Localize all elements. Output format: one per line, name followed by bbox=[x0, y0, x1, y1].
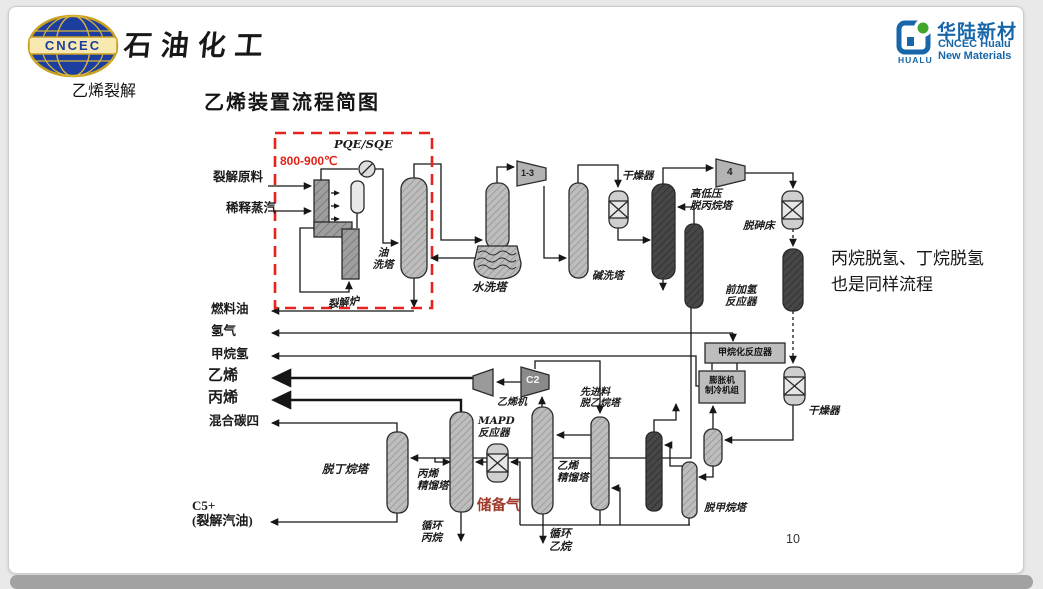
hualu-subtitle-en1: CNCEC Hualu bbox=[938, 38, 1011, 50]
mapd-reactor bbox=[487, 444, 508, 482]
label-recycle-propane: 循环 丙烷 bbox=[421, 521, 442, 545]
front-hydrogenation-reactor bbox=[783, 249, 803, 311]
label-feed-cracking: 裂解原料 bbox=[213, 170, 263, 184]
label-depropanizer: 高低压 脱丙烷塔 bbox=[690, 189, 732, 213]
brand-title: 石油化工 bbox=[122, 24, 274, 64]
page-title: 乙烯装置流程简图 bbox=[204, 86, 380, 115]
hualu-subtitle-en2: New Materials bbox=[938, 50, 1011, 62]
label-front-hydrogenation: 前加氢 反应器 bbox=[725, 285, 757, 309]
deethanizer-column bbox=[591, 417, 609, 510]
label-recycle-ethane: 循环 乙烷 bbox=[549, 528, 571, 553]
label-ethylene-compressor: 乙烯机 bbox=[497, 397, 527, 408]
cold-separator-vessel bbox=[704, 429, 722, 466]
label-hydrogen: 氢气 bbox=[211, 324, 236, 338]
depropanizer-column-2 bbox=[685, 224, 703, 308]
label-oil-wash-tower: 油 洗塔 bbox=[366, 248, 400, 272]
label-debutanizer: 脱丁烷塔 bbox=[322, 463, 368, 476]
compressor-1-3-text: 1-3 bbox=[521, 168, 534, 178]
page-number: 10 bbox=[786, 532, 800, 546]
demethanizer-column bbox=[682, 462, 697, 518]
label-methanation-reactor: 甲烷化反应器 bbox=[706, 347, 784, 357]
cold-column bbox=[646, 432, 662, 511]
label-arsenic-bed: 脱砷床 bbox=[743, 221, 775, 233]
oil-wash-tower bbox=[401, 178, 427, 278]
label-demethanizer: 脱甲烷塔 bbox=[704, 503, 746, 515]
label-methane-hydrogen: 甲烷氢 bbox=[211, 347, 249, 361]
quench-drum bbox=[351, 181, 364, 213]
label-temperature: 800-900℃ bbox=[280, 155, 338, 169]
compressor-c2-text: C2 bbox=[526, 375, 539, 387]
label-ethylene: 乙烯 bbox=[208, 368, 238, 385]
section-label: 乙烯裂解 bbox=[72, 77, 136, 101]
ethylene-expander bbox=[473, 369, 493, 396]
label-caustic-wash-tower: 碱洗塔 bbox=[592, 271, 624, 283]
label-pqe-sqe: PQE/SQE bbox=[334, 138, 393, 151]
label-dryer-right: 干燥器 bbox=[808, 406, 840, 418]
label-c5-gasoline: C5+ (裂解汽油) bbox=[192, 499, 253, 529]
hualu-glyph-text: HUALU bbox=[898, 55, 933, 65]
cncec-badge-text: CNCEC bbox=[45, 38, 101, 53]
label-ethylene-column: 乙烯 精馏塔 bbox=[557, 461, 589, 485]
side-note: 丙烷脱氢、丁烷脱氢 也是同样流程 bbox=[831, 246, 1036, 299]
caustic-wash-tower bbox=[569, 183, 588, 278]
label-feed-steam: 稀释蒸汽 bbox=[226, 201, 276, 215]
label-expander-unit: 膨胀机 制冷机组 bbox=[700, 376, 744, 395]
label-reserve-gas: 储备气 bbox=[477, 498, 521, 515]
cncec-logo-icon: CNCEC bbox=[25, 13, 121, 79]
propylene-column bbox=[450, 412, 473, 512]
water-wash-tower bbox=[486, 183, 509, 249]
hualu-logo-icon: HUALU bbox=[896, 16, 936, 66]
label-fuel-oil: 燃料油 bbox=[211, 302, 249, 316]
arsenic-removal-bed bbox=[782, 191, 803, 229]
label-propylene: 丙烯 bbox=[208, 390, 238, 407]
label-mixed-c4: 混合碳四 bbox=[209, 414, 259, 428]
label-deethanizer: 先进料 脱乙烷塔 bbox=[580, 387, 620, 410]
debutanizer-column bbox=[387, 432, 408, 513]
dryer-right bbox=[784, 367, 805, 405]
ethylene-column bbox=[532, 407, 553, 514]
label-mapd-reactor: MAPD 反应器 bbox=[478, 416, 515, 440]
slide-viewer: CNCEC 石油化工 HUALU 华陆新材 CNCEC Hualu New Ma… bbox=[0, 0, 1043, 589]
label-dryer-left: 干燥器 bbox=[622, 171, 654, 183]
dryer-left bbox=[609, 191, 628, 228]
label-propylene-column: 丙烯 精馏塔 bbox=[417, 469, 449, 493]
compressor-4-text: 4 bbox=[727, 167, 733, 178]
depropanizer-column-1 bbox=[652, 184, 675, 279]
label-water-wash-tower: 水洗塔 bbox=[472, 281, 507, 294]
